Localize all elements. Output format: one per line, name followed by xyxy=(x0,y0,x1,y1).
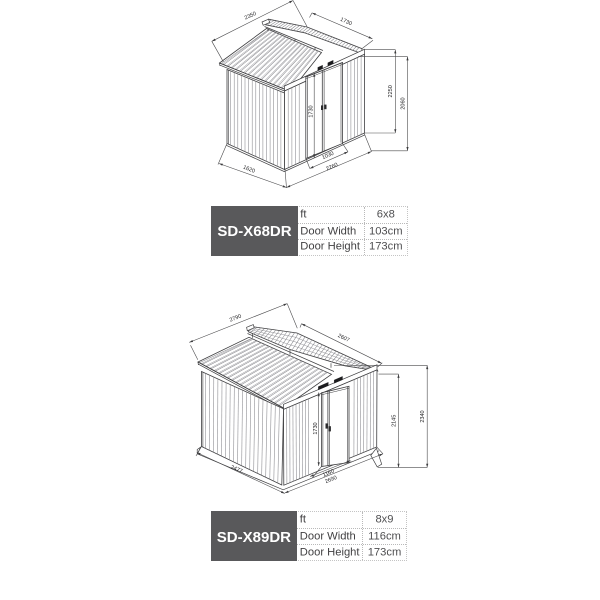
svg-text:2477: 2477 xyxy=(230,465,244,475)
svg-text:1730: 1730 xyxy=(339,17,353,27)
svg-text:2250: 2250 xyxy=(388,85,394,97)
svg-text:2060: 2060 xyxy=(400,97,406,109)
svg-text:1030: 1030 xyxy=(321,151,335,161)
svg-text:2340: 2340 xyxy=(420,410,426,422)
svg-text:1730: 1730 xyxy=(313,422,319,434)
svg-text:1620: 1620 xyxy=(242,165,256,175)
svg-text:1730: 1730 xyxy=(309,105,315,117)
svg-text:2145: 2145 xyxy=(391,415,397,427)
svg-text:2260: 2260 xyxy=(325,162,339,172)
svg-text:2350: 2350 xyxy=(244,11,258,21)
